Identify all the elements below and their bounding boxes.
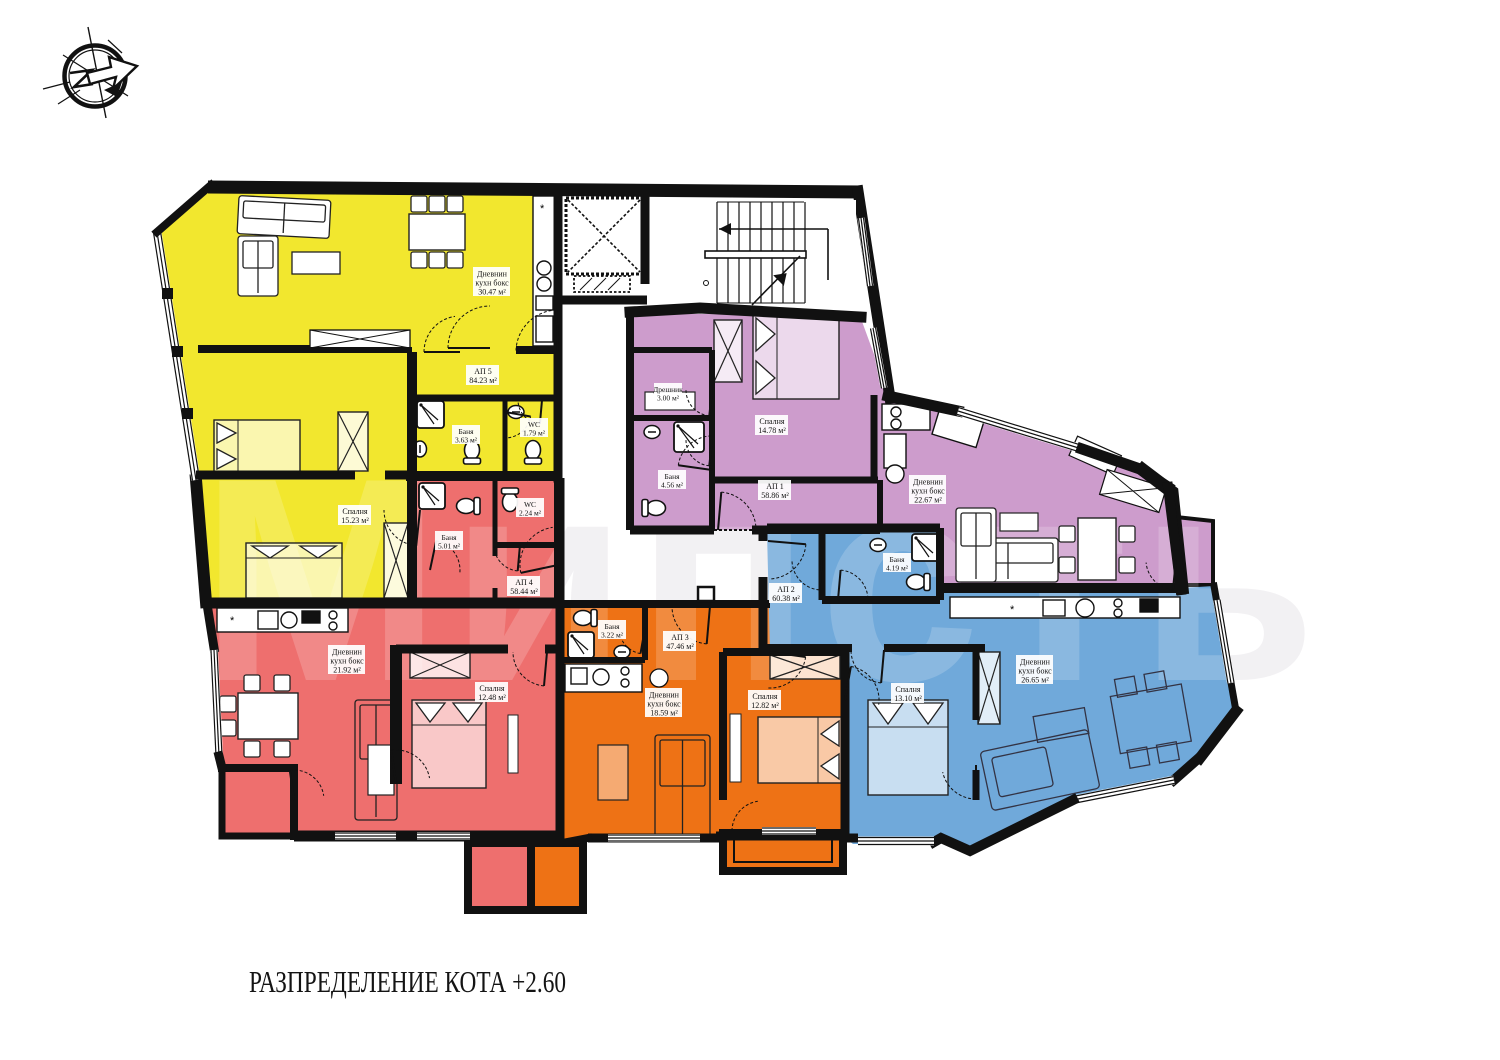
svg-text:12.48 м²: 12.48 м² — [478, 693, 506, 702]
svg-text:Дневнин: Дневнин — [1020, 658, 1051, 667]
svg-text:кухн бокс: кухн бокс — [475, 279, 509, 288]
svg-text:84.23 м²: 84.23 м² — [469, 376, 497, 385]
svg-text:3.00 м²: 3.00 м² — [657, 394, 680, 403]
svg-text:Спалня: Спалня — [752, 692, 778, 701]
svg-text:АП 4: АП 4 — [515, 578, 533, 587]
svg-text:4.19 м²: 4.19 м² — [886, 564, 909, 573]
svg-text:Спалня: Спалня — [479, 684, 505, 693]
svg-text:Дневнин: Дневнин — [332, 648, 363, 657]
svg-text:58.44 м²: 58.44 м² — [510, 587, 538, 596]
svg-text:кухн бокс: кухн бокс — [330, 657, 364, 666]
svg-text:кухн бокс: кухн бокс — [1018, 667, 1052, 676]
svg-text:*: * — [230, 615, 235, 627]
svg-text:26.65 м²: 26.65 м² — [1021, 676, 1049, 685]
svg-text:21.92 м²: 21.92 м² — [333, 666, 361, 675]
svg-text:22.67 м²: 22.67 м² — [914, 496, 942, 505]
svg-text:Спалня: Спалня — [342, 507, 368, 516]
svg-text:14.78 м²: 14.78 м² — [758, 426, 786, 435]
svg-text:30.47 м²: 30.47 м² — [478, 288, 506, 297]
svg-text:60.38 м²: 60.38 м² — [772, 594, 800, 603]
svg-text:4.56 м²: 4.56 м² — [661, 481, 684, 490]
svg-text:2.24 м²: 2.24 м² — [519, 509, 542, 518]
svg-text:47.46 м²: 47.46 м² — [666, 642, 694, 651]
svg-text:*: * — [540, 203, 545, 215]
svg-text:АП 3: АП 3 — [671, 633, 689, 642]
svg-text:АП 5: АП 5 — [474, 367, 492, 376]
svg-text:кухн бокс: кухн бокс — [911, 487, 945, 496]
svg-text:Дневнин: Дневнин — [477, 270, 508, 279]
svg-text:13.10 м²: 13.10 м² — [894, 694, 922, 703]
svg-text:12.82 м²: 12.82 м² — [751, 701, 779, 710]
svg-text:РАЗПРЕДЕЛЕНИЕ КОТА +2.60: РАЗПРЕДЕЛЕНИЕ КОТА +2.60 — [249, 964, 566, 999]
svg-text:15.23 м²: 15.23 м² — [341, 516, 369, 525]
svg-text:5.01 м²: 5.01 м² — [438, 542, 461, 551]
svg-text:3.22 м²: 3.22 м² — [601, 631, 624, 640]
svg-text:АП 2: АП 2 — [777, 585, 795, 594]
svg-text:*: * — [1010, 604, 1015, 616]
svg-text:АП 1: АП 1 — [766, 482, 784, 491]
svg-text:кухн бокс: кухн бокс — [647, 700, 681, 709]
svg-text:18.59 м²: 18.59 м² — [650, 709, 678, 718]
svg-text:Спалня: Спалня — [895, 685, 921, 694]
svg-text:Дневнин: Дневнин — [649, 691, 680, 700]
svg-text:3.63 м²: 3.63 м² — [455, 436, 478, 445]
svg-text:58.86 м²: 58.86 м² — [761, 491, 789, 500]
svg-text:Дневнин: Дневнин — [913, 478, 944, 487]
svg-text:Спалня: Спалня — [759, 417, 785, 426]
svg-text:1.79 м²: 1.79 м² — [523, 429, 546, 438]
